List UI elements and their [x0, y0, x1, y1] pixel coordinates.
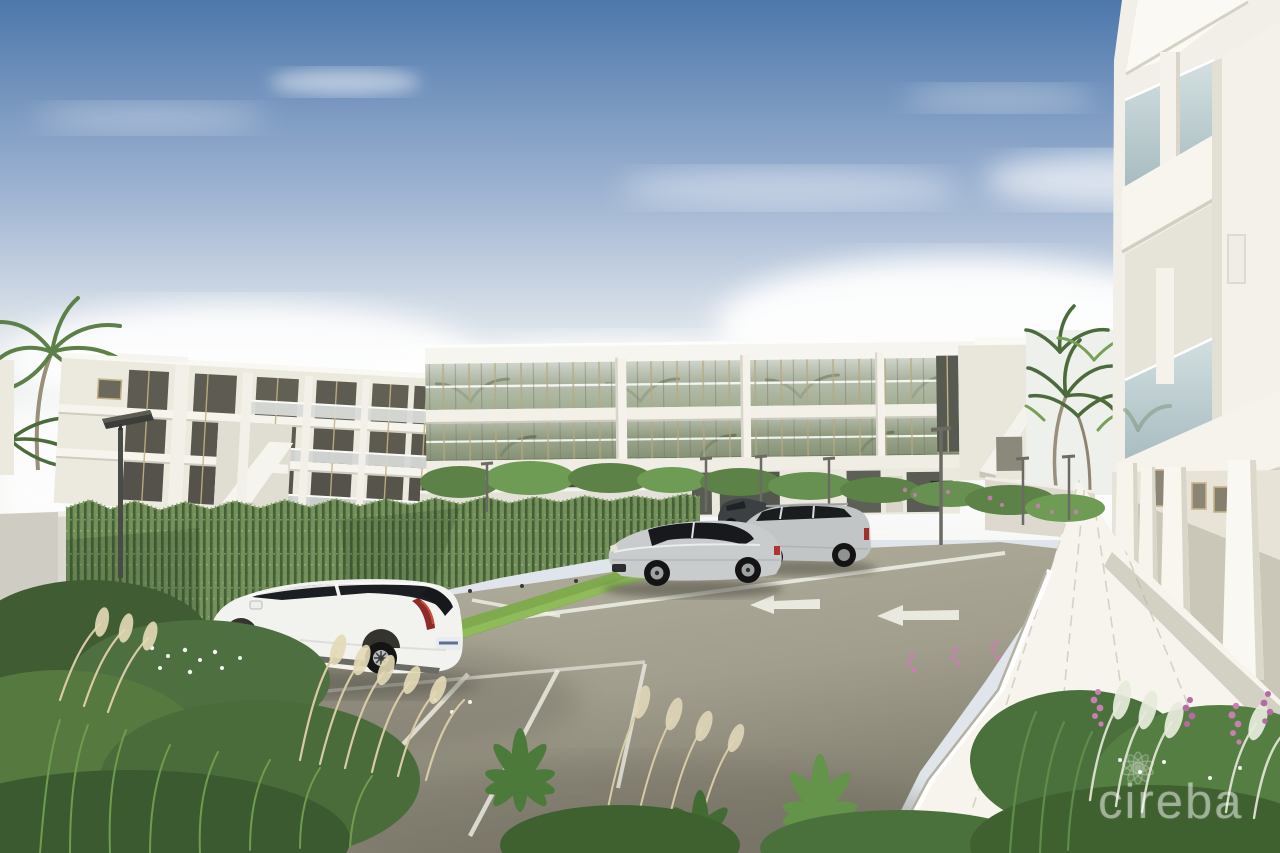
- door-mirror: [250, 601, 262, 609]
- small-window: [98, 379, 122, 399]
- window: [193, 373, 237, 413]
- palm-gap-trees: [1026, 306, 1118, 495]
- edge-building-sliver: [0, 360, 14, 475]
- cloud-band: [620, 168, 960, 208]
- sedan-taillight: [774, 546, 780, 555]
- left-building: [54, 350, 442, 524]
- property-rendering: cireba: [0, 0, 1280, 853]
- recessed-window-inner: [1229, 236, 1244, 282]
- front-intake: [612, 564, 626, 572]
- left-building-facade: [54, 350, 442, 524]
- wispy-cloud: [905, 85, 1095, 111]
- corner-wall-shade: [1212, 58, 1222, 476]
- balcony-column: [1156, 268, 1174, 384]
- external-staircase: [214, 421, 295, 511]
- wispy-cloud: [270, 69, 420, 95]
- wispy-cloud: [35, 103, 265, 133]
- suv-taillight: [864, 528, 869, 540]
- rendering-canvas: [0, 0, 1280, 853]
